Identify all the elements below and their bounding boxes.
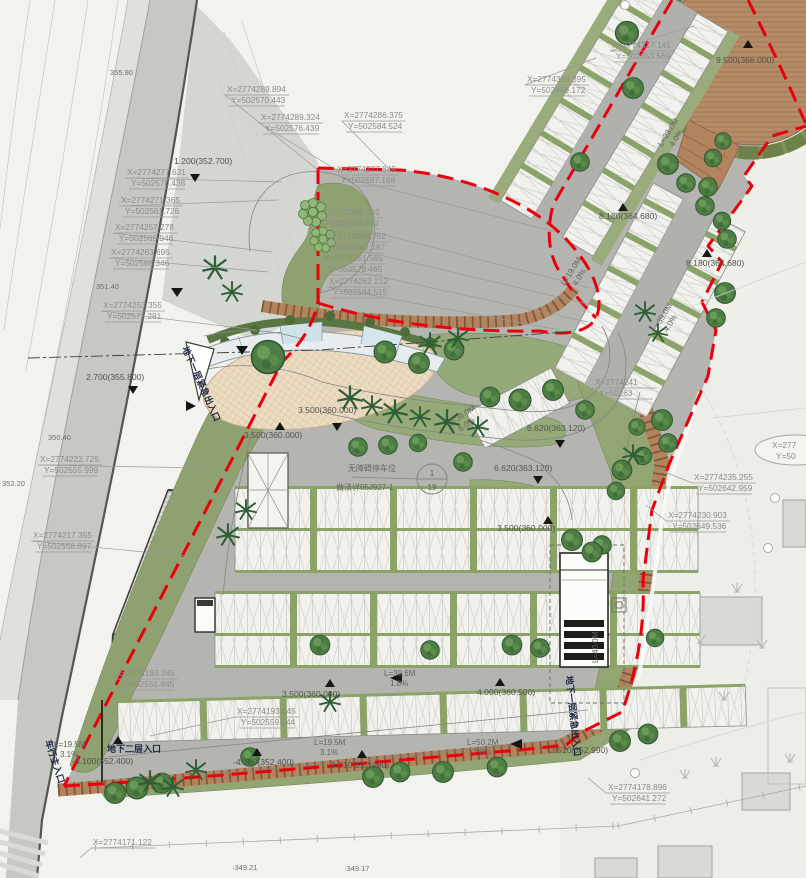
coordinate-x: X=2774235.255: [694, 472, 753, 482]
coordinate-x: X=2774289.324: [261, 112, 320, 122]
spot-elevation: 355.90: [110, 68, 133, 77]
callout-line1: 无障碍停车位: [348, 463, 396, 473]
coordinate-y: Y=502584.515: [333, 287, 388, 297]
coordinate-y: Y=502642.959: [698, 483, 753, 493]
slope-length: L=30.6M: [384, 669, 416, 678]
coordinate-y: Y=502649.172: [531, 85, 586, 95]
elevation-text: 3.500(360.000): [244, 430, 302, 440]
coordinate-x: X=2774257.278: [115, 222, 174, 232]
coordinate-y: Y=502568.346: [115, 258, 170, 268]
coordinate-x: X=2774253.355: [103, 300, 162, 310]
coordinate-x: X=2774262.212: [329, 276, 388, 286]
coordinate-x: X=2774269.282: [321, 207, 380, 217]
elevation-text: 3.500(360.000): [282, 689, 340, 699]
coordinate-x: X=2774277.849: [337, 164, 396, 174]
elevation-text: 3.500(360.000): [298, 405, 356, 415]
coordinate-y: Y=502641.272: [612, 793, 667, 803]
spot-elevation: 350.40: [48, 433, 71, 442]
coordinate-y: Y=502578.465: [328, 264, 383, 274]
slope-length: L=19.5M: [314, 738, 346, 747]
coordinate-x: X=2774308.395: [527, 74, 586, 84]
coordinate-x: X=2774317.141: [612, 40, 671, 50]
coordinate-y: Y=502565.946: [119, 233, 174, 243]
spot-elevation: ·349.21: [232, 863, 257, 872]
slope-length: L=40.0M: [591, 631, 600, 663]
spot-elevation: ·349.17: [344, 864, 369, 873]
coordinate-y: Y=502572.281: [107, 311, 162, 321]
management-kiosk: [195, 598, 215, 632]
coordinate-y: Y=502584.524: [348, 121, 403, 131]
spot-elevation: 351.40: [96, 282, 119, 291]
coordinate-x: X=2774266.262: [327, 231, 386, 241]
slope-percent: 3.1%: [60, 750, 78, 759]
slope-length: L=19.5M: [54, 740, 86, 749]
coordinate-x: X=2774193.245: [237, 706, 296, 716]
ramp-structure: [248, 453, 288, 528]
elevation-text: 6.620(363.120): [494, 463, 552, 473]
coordinate-y: Y=502581.187: [331, 242, 386, 252]
elevation-text: 2.700(355.800): [86, 372, 144, 382]
entrance-label: 地下二层入口: [107, 743, 161, 754]
elevation-text: 8.180(364.680): [686, 258, 744, 268]
slope-label: L=40.0M: [591, 631, 600, 663]
coordinate-x: X=2774261.565: [324, 253, 383, 263]
slope-percent: 1.8%: [390, 679, 408, 688]
coordinate-y: Y=50263: [599, 388, 633, 398]
partial-x: X=277: [772, 440, 797, 450]
coordinate-y: Y=502570.438: [131, 178, 186, 188]
elevation-text: 9.500(366.000): [716, 55, 774, 65]
coordinate-x: X=2774277.631: [127, 167, 186, 177]
coordinate-y: Y=502570.443: [231, 95, 286, 105]
coordinate-x: X=2774263.695: [111, 247, 170, 257]
elevation-text: 6.620(363.120): [527, 423, 585, 433]
coordinate-x: X=2774178.896: [608, 782, 667, 792]
coordinate-y: Y=502653.569: [616, 51, 671, 61]
coordinate-y: Y=502559.544: [241, 717, 296, 727]
coordinate-y: Y=502558.897: [37, 541, 92, 551]
callout-number: 1: [430, 469, 435, 478]
coordinate-y: Y=502576.439: [265, 123, 320, 133]
coordinate-x: X=2774171.122: [93, 837, 152, 847]
elevation-text: -4.100(352.400): [233, 757, 294, 767]
partial-y: Y=50: [776, 451, 796, 461]
spot-elevation: 352.20: [2, 479, 25, 488]
elevation-text: 1.200(352.700): [174, 156, 232, 166]
callout-line2: 做法详05J927-1: [336, 482, 394, 492]
coordinate-y: Y=502587.166: [341, 175, 396, 185]
elevation-text: 3.500(360.000): [497, 523, 555, 533]
site-plan-svg: 1 19 无障碍停车位 做法详05J927-1 X=277 Y=50 X=277…: [0, 0, 806, 878]
coordinate-x: X=2774193.245: [116, 668, 175, 678]
elevation-text: -4.100(352.400): [72, 756, 133, 766]
coordinate-y: Y=502561.728: [125, 206, 180, 216]
coordinate-x: X=2774230.903: [668, 510, 727, 520]
elevation-text: 8.180(364.680): [599, 211, 657, 221]
coordinate-x: X=2774286.375: [344, 110, 403, 120]
slope-percent: 3.1%: [320, 748, 338, 757]
coordinate-y: Y=502555.999: [44, 465, 99, 475]
slope-percent: 7.6%: [473, 748, 491, 757]
coordinate-x: X=2774241: [595, 377, 638, 387]
elevation-text: 4.000(360.500): [477, 687, 535, 697]
elevation-text: -3.510(352.990): [328, 760, 389, 770]
coordinate-x: X=2774271.365: [121, 195, 180, 205]
site-plan-canvas: 1 19 无障碍停车位 做法详05J927-1 X=277 Y=50 X=277…: [0, 0, 806, 878]
coordinate-y: Y=502584.532: [325, 218, 380, 228]
coordinate-x: X=2774289.894: [227, 84, 286, 94]
coordinate-x: X=2774217.355: [33, 530, 92, 540]
callout-sheet: 19: [428, 483, 437, 492]
coordinate-x: X=2774222.725: [40, 454, 99, 464]
coordinate-y: Y=502551.845: [120, 679, 175, 689]
slope-length: L=50.2M: [467, 738, 499, 747]
coordinate-y: Y=502649.536: [672, 521, 727, 531]
